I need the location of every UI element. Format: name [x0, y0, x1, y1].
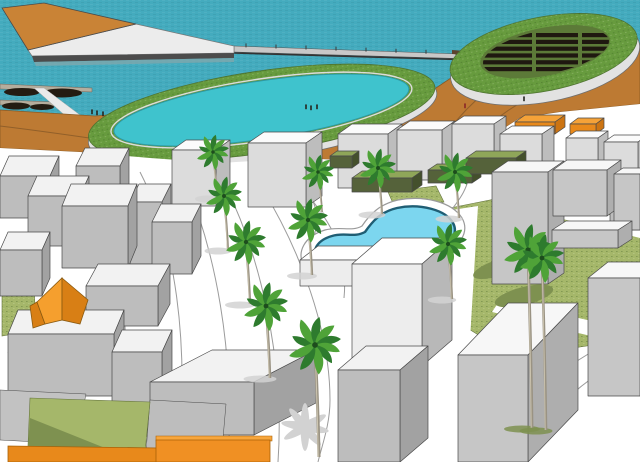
- person-figure: [310, 105, 312, 110]
- panel-row: [536, 53, 578, 57]
- orange-building-strip: [8, 446, 158, 462]
- person-figure: [96, 110, 98, 115]
- panel-row: [482, 53, 532, 57]
- building-block: [0, 232, 50, 296]
- orange-building-strip: [156, 440, 270, 462]
- building-block: [152, 204, 201, 274]
- person-figure: [305, 104, 307, 109]
- render-viewport: 3D architectural massing render of a wat…: [0, 0, 640, 462]
- palm-shadow: [520, 428, 553, 435]
- palm-shadow: [244, 376, 277, 383]
- building-block: [338, 346, 428, 462]
- panel-row: [536, 33, 578, 37]
- boat: [4, 88, 40, 96]
- planter-box: [330, 151, 359, 168]
- architectural-render-scene: 3D architectural massing render of a wat…: [0, 0, 640, 462]
- palm-shadow: [301, 403, 310, 451]
- panel-row: [536, 40, 578, 44]
- panel-row: [482, 60, 532, 64]
- person-figure: [464, 103, 466, 108]
- building-block: [62, 184, 137, 268]
- boat: [30, 104, 54, 110]
- building-block: [552, 221, 632, 248]
- person-figure: [102, 111, 104, 116]
- panel-row: [536, 60, 578, 64]
- person-figure: [316, 104, 318, 109]
- panel-row: [536, 47, 578, 51]
- boat: [2, 103, 30, 110]
- person-figure: [523, 96, 525, 101]
- building-block: [588, 262, 640, 396]
- building-block: [8, 310, 124, 396]
- panel-row: [482, 67, 532, 71]
- building-block: [553, 160, 621, 216]
- person-figure: [91, 109, 93, 114]
